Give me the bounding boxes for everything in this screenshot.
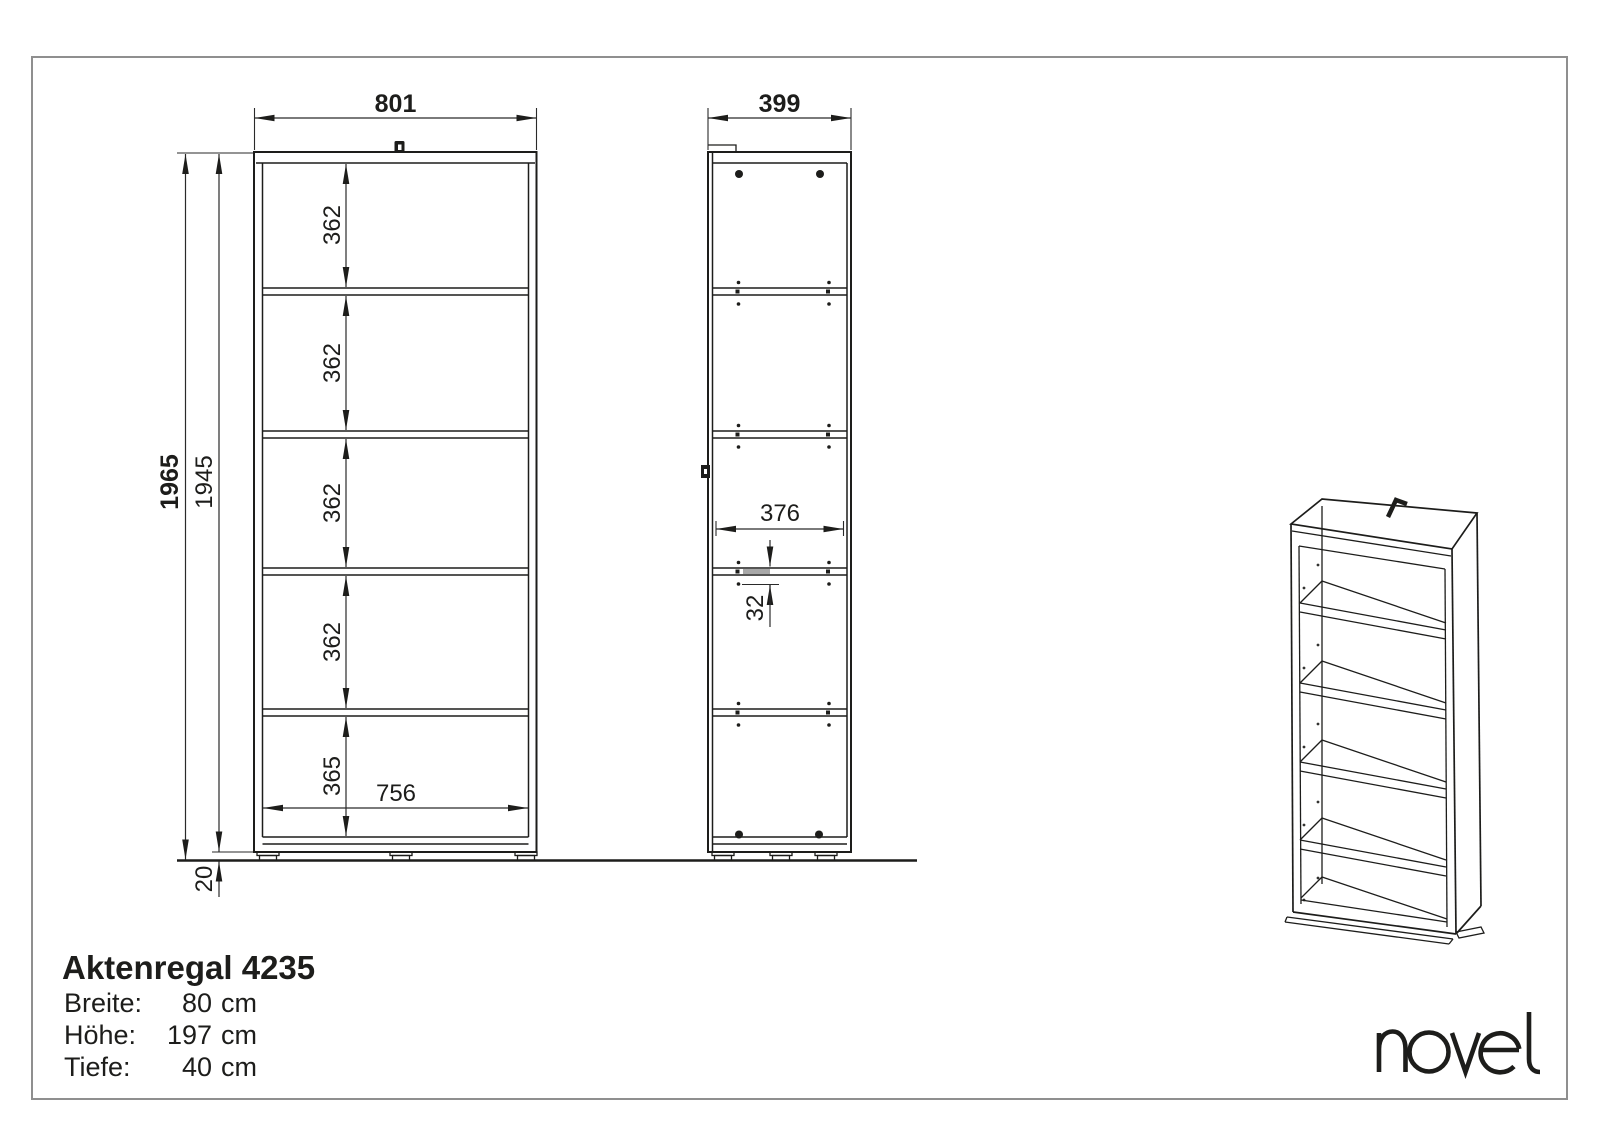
- perspective-wall-anchor-icon: [1388, 500, 1407, 517]
- front-view-drawing: 801 1965 1945 20 362 362 362 362 365: [156, 90, 537, 897]
- spec-value-hoehe: 197: [167, 1020, 212, 1050]
- drawing-page: 801 1965 1945 20 362 362 362 362 365: [0, 0, 1600, 1131]
- shelf-pitch-dim-label-2: 362: [319, 343, 346, 383]
- front-feet: [257, 852, 537, 861]
- perspective-view-drawing: [1285, 499, 1484, 944]
- technical-drawing-canvas: 801 1965 1945 20 362 362 362 362 365: [0, 0, 1600, 1131]
- shelf-pitch-dimensions: 362 362 362 362 365: [319, 164, 346, 836]
- shelf-pitch-dim-label-3: 362: [319, 483, 346, 523]
- front-shelves: [263, 288, 529, 844]
- base-height-dim-label: 20: [191, 866, 218, 893]
- spec-unit-tiefe: cm: [221, 1052, 257, 1082]
- shelf-pitch-dim-label-4: 362: [319, 622, 346, 662]
- spec-label-breite: Breite:: [64, 988, 142, 1018]
- side-wall-anchor-icon: [701, 465, 710, 478]
- spec-value-tiefe: 40: [182, 1052, 212, 1082]
- wall-anchor-icon: [395, 141, 405, 153]
- spec-value-breite: 80: [182, 988, 212, 1018]
- shelf-pitch-dim-label-1: 362: [319, 205, 346, 245]
- inner-depth-dimension: 376: [716, 500, 844, 536]
- side-view-drawing: 399 376 32: [701, 90, 851, 861]
- front-width-dimension: 801: [255, 90, 537, 150]
- highlighted-shelf-section: [743, 569, 770, 574]
- novel-logo: novel: [1379, 1012, 1540, 1072]
- side-feet: [712, 852, 837, 861]
- inner-width-dimension: 756: [263, 780, 528, 808]
- bottom-pitch-dim-label: 365: [319, 756, 346, 796]
- side-depth-dimension: 399: [708, 90, 851, 150]
- front-width-dim-label: 801: [375, 90, 417, 118]
- front-height-dimensions: 1965 1945 20: [156, 153, 253, 897]
- title-block: Aktenregal 4235 Breite: 80 cm Höhe: 197 …: [62, 949, 315, 1082]
- product-title: Aktenregal 4235: [62, 949, 315, 986]
- carcass-height-dim-label: 1945: [191, 455, 218, 508]
- front-height-dim-label: 1965: [156, 454, 184, 510]
- spec-label-hoehe: Höhe:: [64, 1020, 136, 1050]
- spec-unit-breite: cm: [221, 988, 257, 1018]
- inner-width-dim-label: 756: [376, 780, 416, 807]
- side-shelves: [713, 288, 848, 844]
- side-inner-depth-dim-label: 376: [760, 500, 800, 527]
- spec-label-tiefe: Tiefe:: [64, 1052, 131, 1082]
- side-depth-dim-label: 399: [759, 90, 801, 118]
- spec-unit-hoehe: cm: [221, 1020, 257, 1050]
- perspective-base: [1285, 917, 1484, 944]
- hole-pitch-dim-label: 32: [742, 595, 769, 622]
- hole-pitch-dimension: 32: [742, 540, 779, 627]
